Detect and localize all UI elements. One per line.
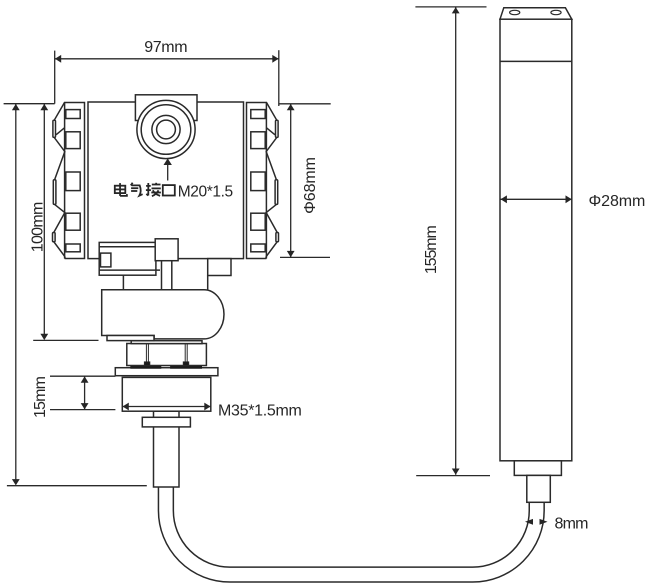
svg-text:M20*1.5: M20*1.5: [178, 184, 233, 201]
svg-text:15mm: 15mm: [32, 376, 49, 418]
svg-text:Φ68mm: Φ68mm: [302, 157, 319, 214]
svg-text:100mm: 100mm: [29, 202, 46, 252]
svg-text:97mm: 97mm: [144, 39, 187, 56]
svg-text:155mm: 155mm: [423, 226, 440, 275]
svg-text:M35*1.5mm: M35*1.5mm: [218, 403, 302, 420]
svg-text:Φ28mm: Φ28mm: [589, 193, 646, 210]
svg-text:8mm: 8mm: [555, 516, 589, 533]
